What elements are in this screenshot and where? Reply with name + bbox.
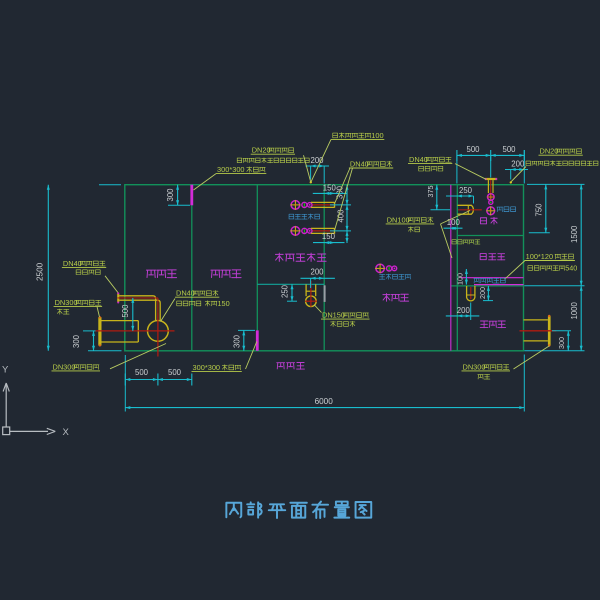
- svg-text:500: 500: [466, 145, 480, 154]
- svg-text:150: 150: [323, 183, 337, 192]
- svg-text:200: 200: [511, 159, 525, 168]
- svg-text:250: 250: [281, 284, 290, 298]
- svg-text:300*300: 300*300: [193, 363, 221, 372]
- svg-text:150: 150: [322, 232, 336, 241]
- svg-text:100: 100: [371, 131, 383, 140]
- svg-text:300: 300: [557, 337, 566, 349]
- svg-text:X: X: [63, 427, 70, 438]
- svg-text:100: 100: [456, 273, 465, 285]
- svg-text:100*120: 100*120: [526, 252, 554, 261]
- svg-text:DN20: DN20: [252, 146, 271, 155]
- svg-text:DN300: DN300: [463, 362, 486, 371]
- svg-text:300: 300: [72, 334, 81, 348]
- svg-text:300: 300: [233, 334, 242, 348]
- svg-text:DN20: DN20: [540, 147, 559, 156]
- svg-text:500: 500: [135, 368, 149, 377]
- svg-text:DN40: DN40: [409, 155, 428, 164]
- svg-text:200: 200: [457, 306, 471, 315]
- svg-text:1000: 1000: [570, 301, 579, 319]
- svg-text:DN40: DN40: [176, 289, 195, 298]
- svg-text:300*300: 300*300: [217, 165, 245, 174]
- svg-text:540: 540: [565, 263, 577, 272]
- svg-text:6000: 6000: [315, 397, 334, 406]
- svg-text:DN40: DN40: [63, 259, 82, 268]
- svg-text:300: 300: [336, 185, 345, 199]
- svg-text:DN40: DN40: [350, 159, 369, 168]
- svg-text:DN150: DN150: [322, 311, 345, 320]
- svg-text:200: 200: [310, 268, 324, 277]
- svg-text:500: 500: [502, 145, 516, 154]
- svg-text:1500: 1500: [570, 225, 579, 243]
- svg-text:Y: Y: [2, 365, 9, 376]
- svg-text:250: 250: [459, 186, 473, 195]
- svg-text:375: 375: [426, 186, 435, 198]
- svg-text:500: 500: [168, 368, 182, 377]
- svg-text:200: 200: [478, 287, 487, 299]
- svg-text:DN300: DN300: [55, 298, 78, 307]
- svg-text:DN300: DN300: [53, 362, 76, 371]
- svg-text:500: 500: [121, 304, 130, 318]
- svg-text:150: 150: [218, 299, 230, 308]
- svg-text:DN100: DN100: [387, 215, 410, 224]
- svg-text:300: 300: [166, 188, 175, 202]
- svg-text:100: 100: [447, 218, 461, 227]
- svg-text:750: 750: [535, 203, 544, 217]
- svg-text:2500: 2500: [36, 262, 45, 281]
